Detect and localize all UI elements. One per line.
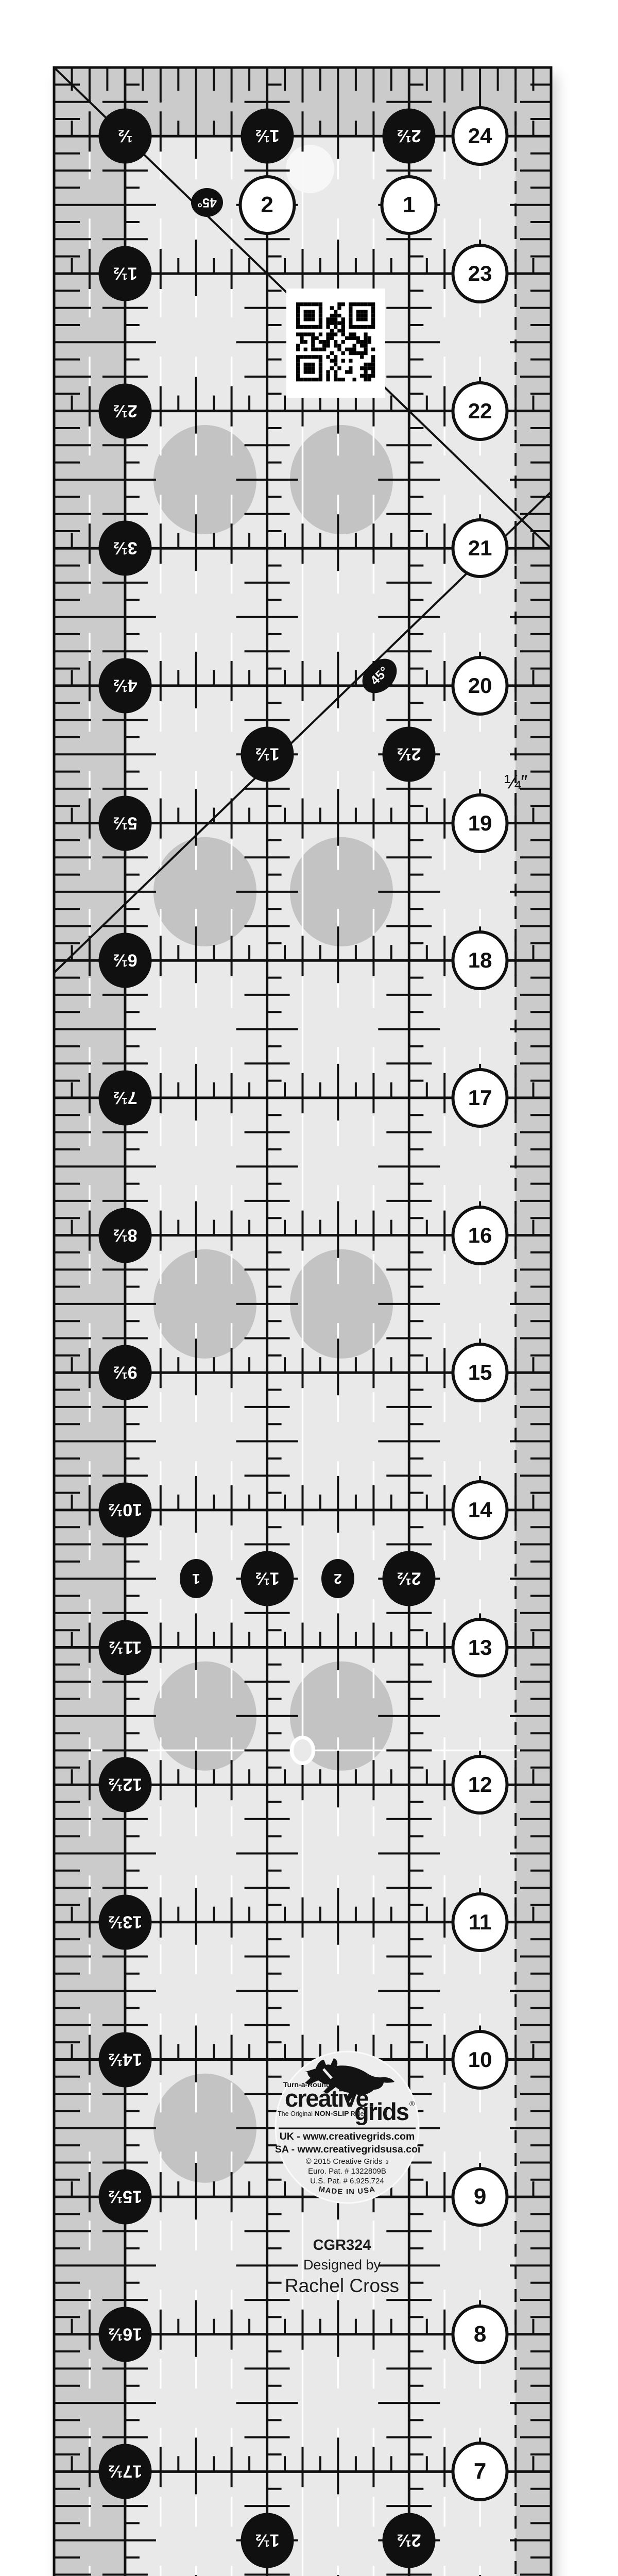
top-scale-label: 1½	[241, 109, 294, 164]
quarter-inch-label-right-upper: ¼″	[504, 772, 527, 794]
right-scale-label: 8	[452, 2304, 509, 2364]
right-scale-label: 18	[452, 930, 509, 990]
right-scale-label: 20	[452, 656, 509, 716]
interior-white-label: 2	[238, 175, 296, 235]
designed-by-label: Designed by	[265, 2257, 419, 2273]
interior-black-label: 1	[180, 1559, 213, 1598]
logo-copyright: © 2015 Creative GridsB	[306, 2157, 389, 2166]
interior-black-label: 2½	[383, 727, 436, 782]
right-scale-label: 22	[452, 381, 509, 441]
left-scale-label: 13½	[98, 1894, 151, 1950]
left-scale-label: 8½	[98, 1208, 151, 1263]
right-scale-label: 12	[452, 1755, 509, 1815]
qr-modules	[296, 302, 375, 382]
logo-registered-mark: ®	[409, 2099, 415, 2108]
right-scale-label: 17	[452, 1068, 509, 1128]
right-scale-label: 15	[452, 1343, 509, 1402]
logo-usa-url: USA - www.creativegridsusa.com	[274, 2144, 420, 2155]
logo-patent-us: U.S. Pat. # 6,925,724	[310, 2177, 384, 2185]
logo-tagline: The Original NON-SLIP Ruler	[278, 2109, 366, 2117]
left-scale-label: 16½	[98, 2307, 151, 2362]
logo-patent-euro: Euro. Pat. # 1322809B	[308, 2167, 386, 2176]
left-scale-label: 10½	[98, 1482, 151, 1537]
creative-grids-logo: Turn-a-Round™ creative. grids ® The Orig…	[274, 2050, 420, 2205]
interior-black-label: 2½	[383, 2513, 436, 2568]
designer-block: CGR324 Designed by Rachel Cross	[265, 2237, 419, 2297]
left-scale-label: 14½	[98, 2032, 151, 2087]
right-scale-label: 24	[452, 106, 509, 166]
right-scale-label: 23	[452, 244, 509, 303]
right-scale-label: 11	[452, 1892, 509, 1952]
right-scale-label: 19	[452, 793, 509, 853]
interior-black-label: 1½	[241, 2513, 294, 2568]
left-scale-label: 1½	[98, 246, 151, 301]
right-scale-label: 16	[452, 1206, 509, 1265]
left-scale-label: 17½	[98, 2444, 151, 2499]
right-scale-label: 9	[452, 2167, 509, 2227]
left-scale-label: 6½	[98, 933, 151, 988]
left-scale-label: 15½	[98, 2170, 151, 2225]
left-scale-label: 4½	[98, 658, 151, 713]
left-scale-label: 5½	[98, 795, 151, 851]
right-scale-label: 13	[452, 1618, 509, 1677]
left-scale-label: 11½	[98, 1620, 151, 1675]
top-scale-label: 2½	[383, 109, 436, 164]
left-scale-label: 9½	[98, 1345, 151, 1400]
right-scale-label: 10	[452, 2030, 509, 2090]
qr-code	[286, 289, 385, 398]
left-scale-label: 2½	[98, 383, 151, 438]
interior-white-label: 1	[381, 175, 438, 235]
interior-black-label: 2½	[383, 1551, 436, 1606]
right-scale-label: 7	[452, 2442, 509, 2501]
right-scale-label: 21	[452, 518, 509, 578]
designer-name: Rachel Cross	[265, 2275, 419, 2297]
right-scale-label: 14	[452, 1480, 509, 1540]
interior-black-label: 1½	[241, 727, 294, 782]
ruler-photo: Turn-a-Round™ creative. grids ® The Orig…	[0, 0, 618, 2576]
logo-uk-url: UK - www.creativegrids.com	[280, 2131, 415, 2142]
interior-black-label: 1½	[241, 1551, 294, 1606]
left-scale-label: 7½	[98, 1070, 151, 1125]
model-number: CGR324	[265, 2237, 419, 2254]
angle-label: 45°	[191, 188, 223, 217]
left-scale-label: 12½	[98, 1757, 151, 1812]
left-scale-label: 3½	[98, 521, 151, 576]
left-scale-label: ½	[98, 109, 151, 164]
